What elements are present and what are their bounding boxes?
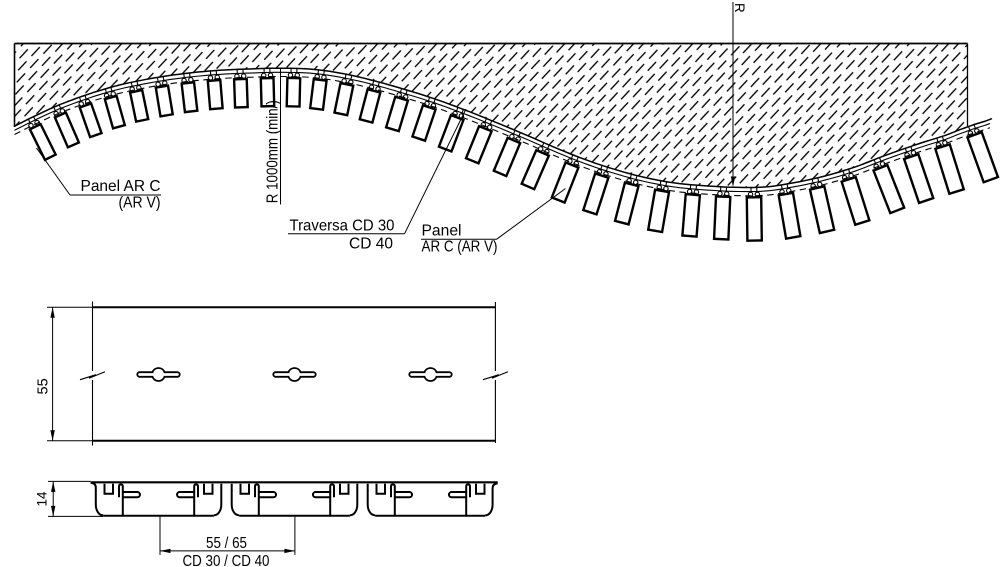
svg-text:14: 14 xyxy=(35,491,50,507)
svg-text:R: R xyxy=(732,3,747,13)
svg-text:Panel: Panel xyxy=(422,223,462,240)
svg-text:R 1000mm (min/): R 1000mm (min/) xyxy=(265,100,282,203)
svg-text:AR C (AR V): AR C (AR V) xyxy=(422,239,498,256)
svg-text:Traversa CD 30: Traversa CD 30 xyxy=(290,218,395,235)
svg-text:55: 55 xyxy=(36,378,52,394)
svg-text:Panel AR C: Panel AR C xyxy=(81,178,161,195)
svg-text:CD 30 / CD 40: CD 30 / CD 40 xyxy=(183,553,270,567)
svg-text:CD 40: CD 40 xyxy=(349,236,393,253)
svg-text:(AR V): (AR V) xyxy=(119,195,161,212)
svg-text:55 / 65: 55 / 65 xyxy=(206,535,247,552)
